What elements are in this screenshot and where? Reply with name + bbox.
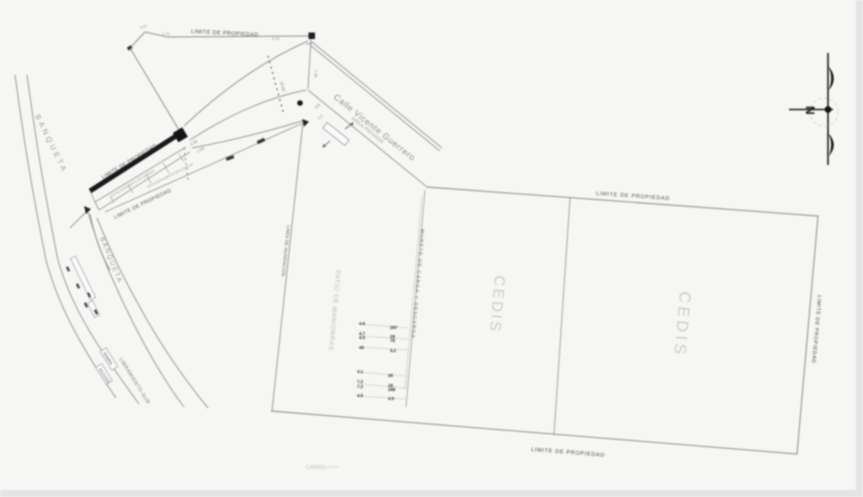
svg-text:4.5: 4.5 bbox=[359, 335, 366, 340]
svg-text:45: 45 bbox=[388, 373, 393, 378]
svg-text:4.2: 4.2 bbox=[390, 348, 397, 353]
svg-text:4.5: 4.5 bbox=[388, 396, 395, 401]
svg-text:3.1: 3.1 bbox=[357, 369, 364, 374]
svg-text:78: 78 bbox=[390, 338, 395, 343]
svg-text:4.5: 4.5 bbox=[357, 393, 364, 398]
svg-text:45: 45 bbox=[359, 345, 364, 350]
svg-text:N: N bbox=[803, 106, 817, 115]
svg-text:287: 287 bbox=[390, 325, 398, 330]
svg-text:288: 288 bbox=[388, 387, 396, 392]
svg-text:4.5: 4.5 bbox=[359, 321, 366, 326]
svg-text:7.2: 7.2 bbox=[357, 384, 364, 389]
svg-text:6.91: 6.91 bbox=[272, 36, 281, 41]
svg-text:7.50: 7.50 bbox=[313, 70, 319, 79]
svg-text:CARRIL: CARRIL bbox=[306, 465, 327, 471]
svg-text:1.73: 1.73 bbox=[162, 31, 171, 36]
